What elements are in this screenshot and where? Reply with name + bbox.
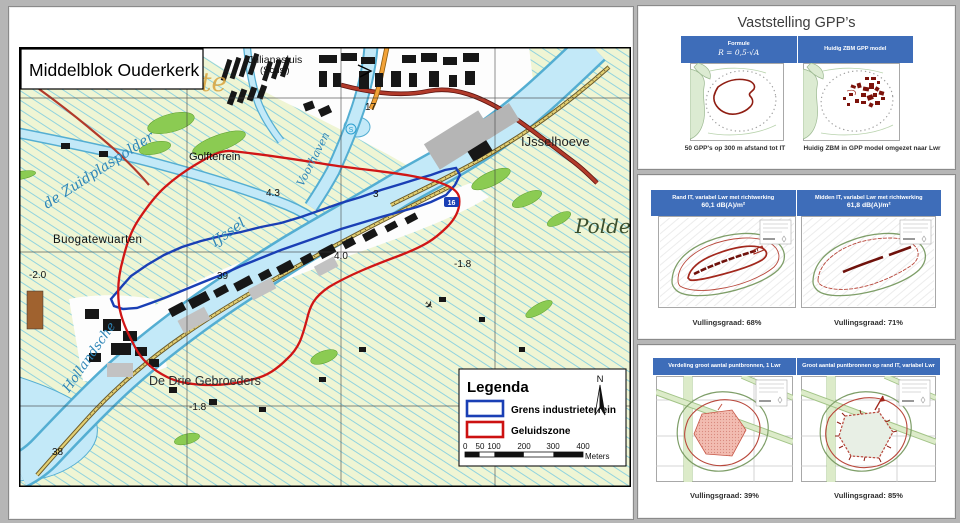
slide3-caption-left: Vullingsgraad: 39%: [656, 491, 793, 500]
slide3-header-left: Verdeling groot aantal puntbronnen, 1 Lw…: [653, 358, 796, 375]
mini-legend: [899, 380, 930, 406]
gpp-formula: R = 0,5·√A: [718, 48, 759, 58]
river-km-badge: 16: [444, 197, 459, 207]
mini-legend: [756, 380, 787, 406]
thumbnail-gpp-ring: [690, 63, 784, 141]
svg-text:Meters: Meters: [585, 452, 609, 461]
slide3-header-band: Verdeling groot aantal puntbronnen, 1 Lw…: [653, 358, 940, 375]
label-golfterrein: Golfterrein: [189, 151, 240, 163]
placename-watermark: te: [201, 68, 227, 98]
slide1-title: Vaststelling GPP’s: [638, 15, 955, 31]
legend-swatch-geluidszone: [467, 422, 503, 437]
slide2-header-band: Rand IT, variabel Lwr met richtwerking 6…: [651, 190, 941, 216]
legend-swatch-industrieterrein: [467, 401, 503, 416]
legend-label-geluidszone: Geluidszone: [511, 426, 571, 437]
slide3-caption-right: Vullingsgraad: 85%: [801, 491, 936, 500]
svg-text:4.0: 4.0: [334, 251, 348, 262]
slide2-caption-right: Vullingsgraad: 71%: [801, 318, 936, 327]
slide1-caption-left: 50 GPP's op 300 m afstand tot IT: [668, 145, 802, 152]
thumbnail-midden-it: [801, 216, 936, 308]
svg-text:3: 3: [373, 189, 379, 200]
svg-text:-2.0: -2.0: [29, 270, 47, 281]
slide1-header-left: Formule R = 0,5·√A: [681, 36, 797, 63]
label-drie-gebroeders: De Drie Gebroeders: [149, 374, 261, 388]
slide1-header-right: Huidig ZBM GPP model: [798, 36, 914, 63]
svg-text:-1.8: -1.8: [189, 402, 207, 413]
thumbnail-puntbronnen-rand: [801, 376, 936, 482]
map-title-box: Middelblok Ouderkerk: [21, 49, 203, 89]
mini-legend: [900, 220, 931, 244]
svg-text:17: 17: [365, 102, 377, 113]
svg-text:4.3: 4.3: [266, 188, 280, 199]
slide2-header-right: Midden IT, variabel Lwr met richtwerking…: [797, 190, 942, 216]
page: 16 S ✈ te Julianasluis (Schsl) de Zuidpl…: [0, 0, 960, 523]
slide2-header-left: Rand IT, variabel Lwr met richtwerking 6…: [651, 190, 796, 216]
legend-title: Legenda: [467, 379, 529, 396]
topographic-map: 16 S ✈ te Julianasluis (Schsl) de Zuidpl…: [19, 47, 631, 487]
map-figure-card: 16 S ✈ te Julianasluis (Schsl) de Zuidpl…: [8, 6, 634, 520]
svg-text:0: 0: [463, 442, 468, 451]
svg-text:200: 200: [517, 442, 531, 451]
thumbnail-zbm-sources: [803, 63, 900, 141]
svg-text:400: 400: [576, 442, 590, 451]
slide1-header-band: Formule R = 0,5·√A Huidig ZBM GPP model: [681, 36, 913, 63]
slide-vaststelling-gpps: Vaststelling GPP’s Formule R = 0,5·√A Hu…: [637, 5, 956, 170]
svg-text:N: N: [597, 374, 604, 385]
svg-text:39: 39: [217, 271, 229, 282]
label-buurt: Buogatewuarten: [53, 234, 142, 246]
svg-text:50: 50: [476, 442, 485, 451]
map-title: Middelblok Ouderkerk: [29, 60, 199, 80]
svg-text:100: 100: [487, 442, 501, 451]
label-polder: Polder: [574, 214, 631, 238]
svg-text:-1.8: -1.8: [454, 259, 472, 270]
slide3-header-right: Groot aantal puntbronnen op rand IT, var…: [797, 358, 940, 375]
slide-rand-midden-it: Rand IT, variabel Lwr met richtwerking 6…: [637, 174, 956, 340]
mini-legend: [760, 220, 791, 244]
svg-text:38: 38: [52, 447, 64, 458]
sluice-symbol: S: [349, 127, 354, 134]
label-ijsselhoeve: IJsselhoeve: [521, 134, 590, 149]
map-legend: Legenda Grens industrieterrein Geluidszo…: [459, 369, 626, 466]
slide1-caption-right: Huidig ZBM in GPP model omgezet naar Lwr: [801, 145, 943, 152]
label-julianasluis-2: (Schsl): [260, 65, 290, 76]
svg-text:300: 300: [546, 442, 560, 451]
thumbnail-puntbronnen-verdeeld: [656, 376, 793, 482]
slide-puntbronnen: Verdeling groot aantal puntbronnen, 1 Lw…: [637, 344, 956, 519]
slide2-caption-left: Vullingsgraad: 68%: [658, 318, 796, 327]
svg-text:16: 16: [448, 200, 456, 207]
thumbnail-rand-it: [658, 216, 796, 308]
